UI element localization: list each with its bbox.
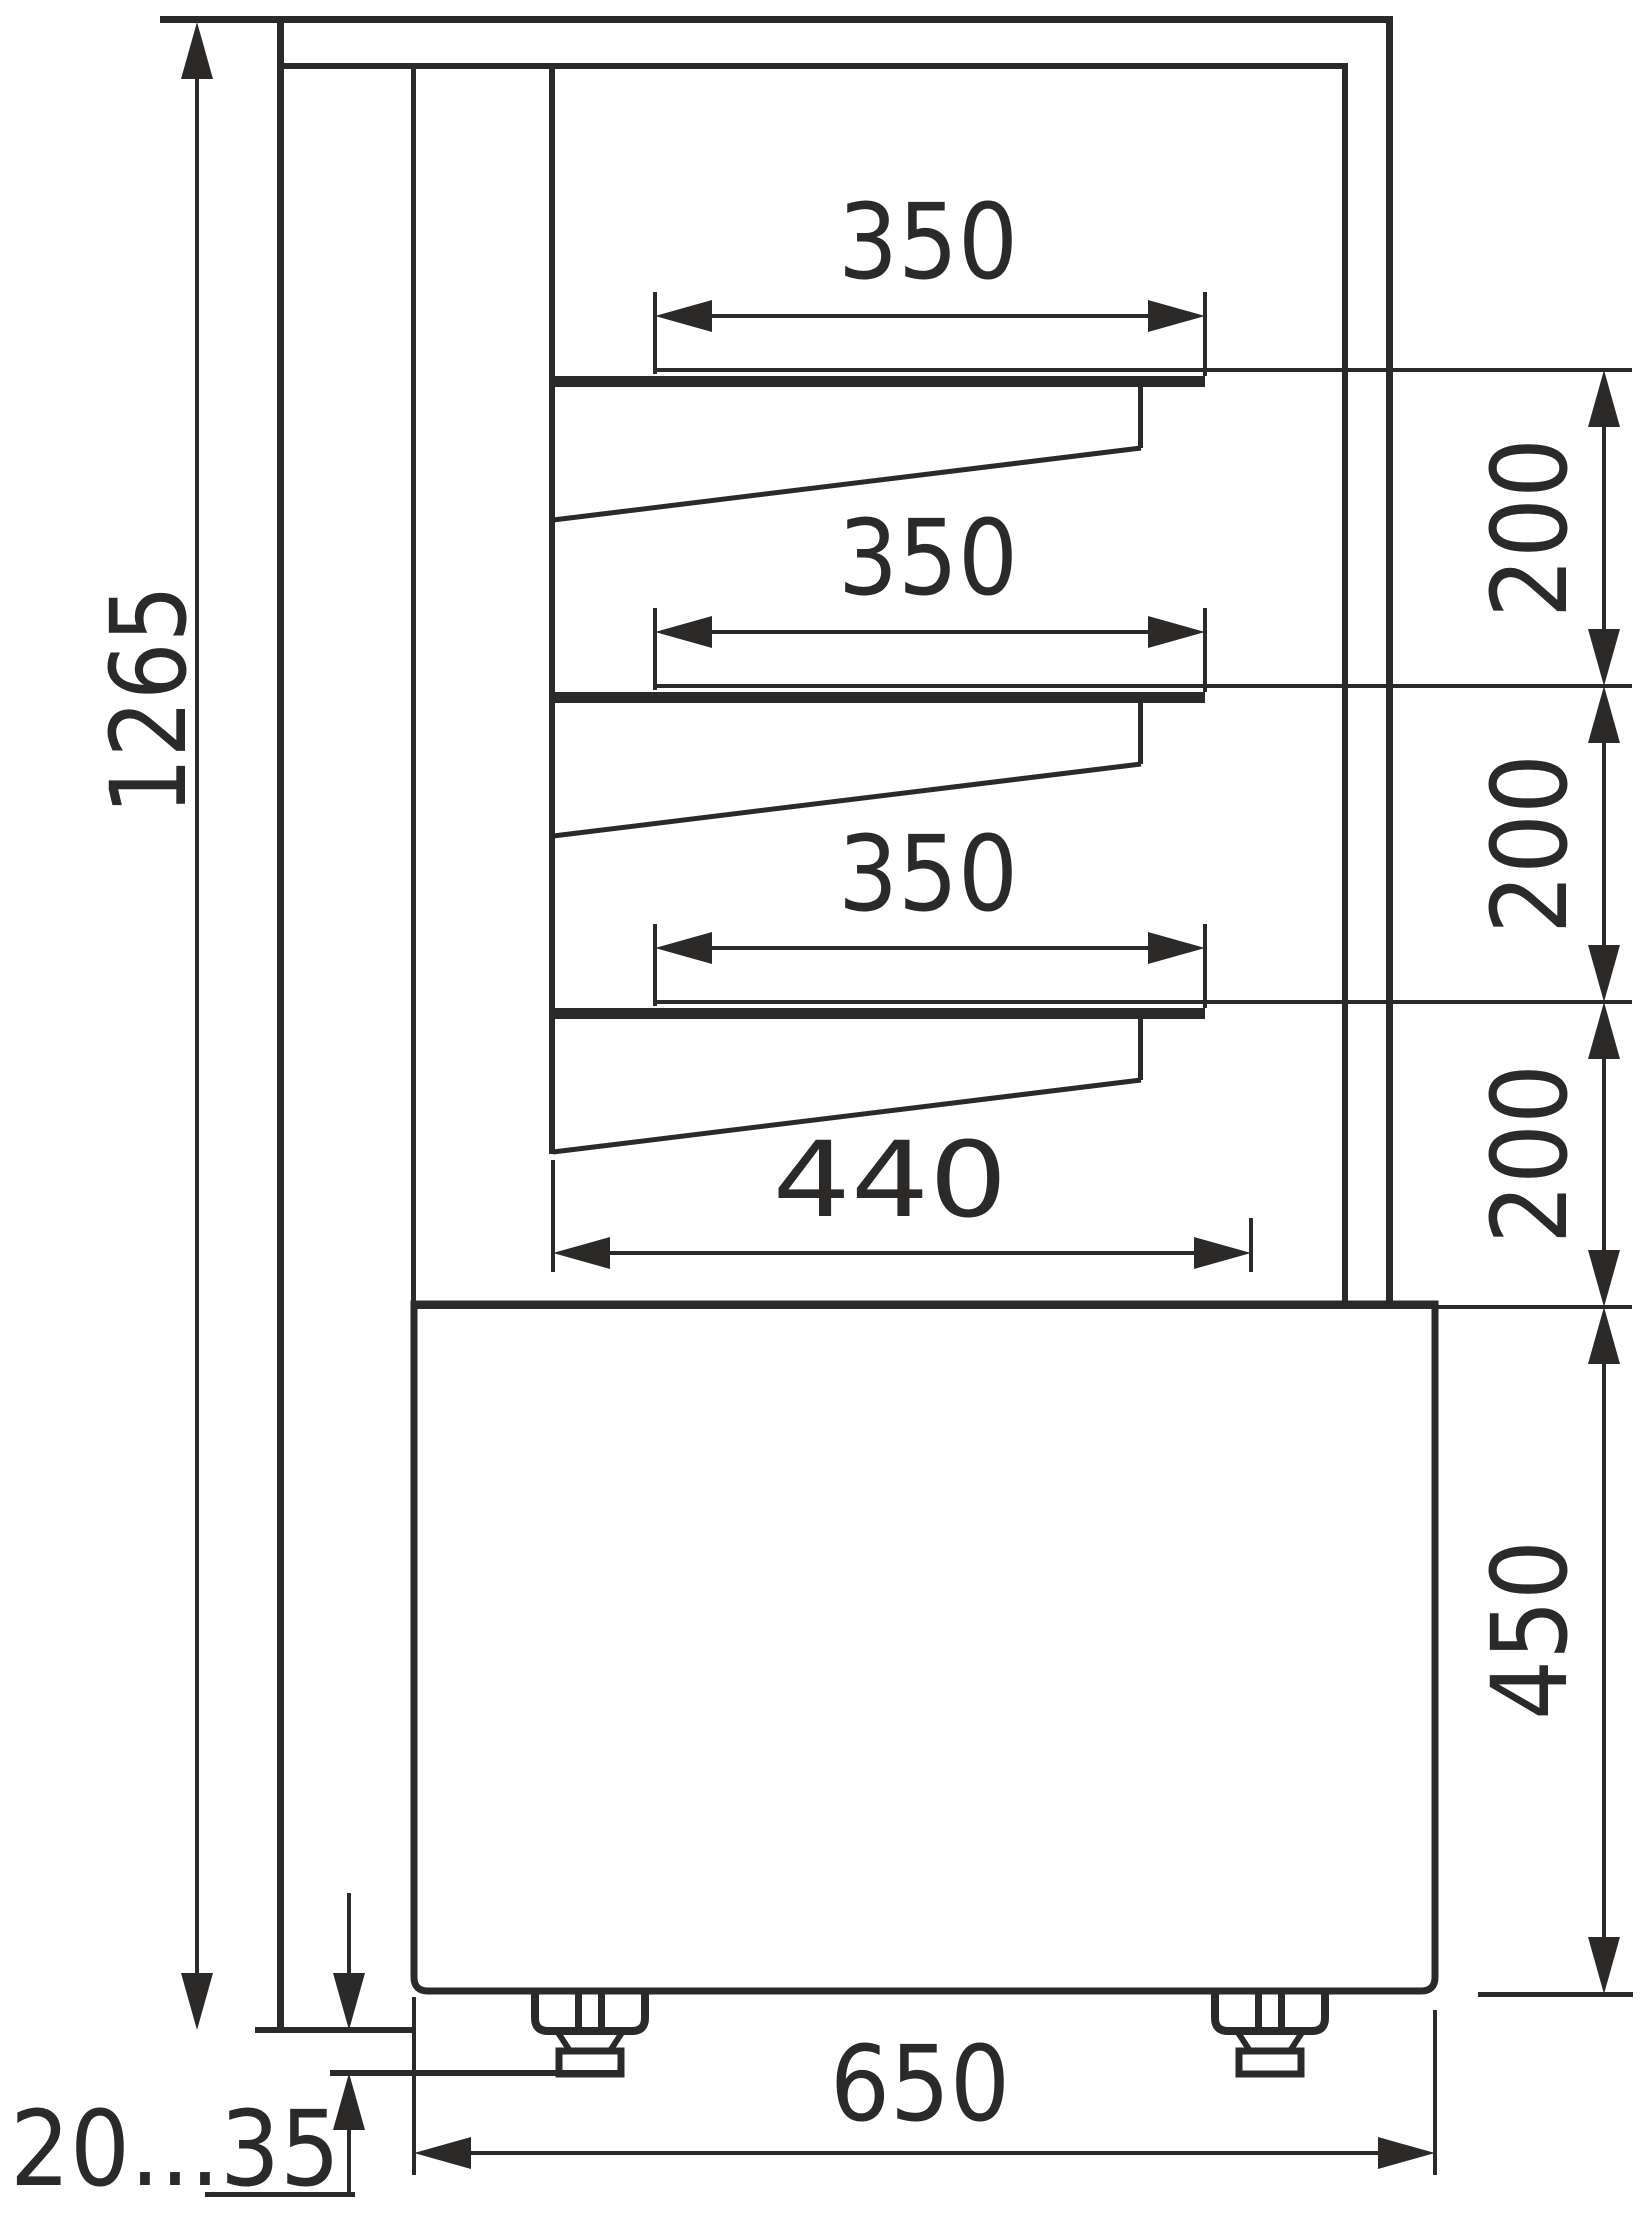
gap-3-arrow-up (1588, 1002, 1620, 1059)
rear-foot-bolt-right (598, 1994, 605, 2031)
depth-arrow-left (414, 2137, 471, 2169)
bottom-shelf-depth-dimension: 440 (551, 1119, 1253, 1272)
shelf-gap-3-label: 200 (1469, 1064, 1591, 1244)
shelf-2-front-edge (1138, 703, 1143, 764)
base-height-arrow-up (1588, 1307, 1620, 1364)
overall-height-label: 1265 (88, 585, 210, 815)
gap-2-arrow-up (1588, 686, 1620, 743)
shelf-2-depth-ext-left (653, 608, 657, 690)
gap-3-arrow-down (1588, 1250, 1620, 1307)
foot-dim-upper-shaft (347, 1893, 351, 1975)
shelf-1-reference-line (655, 368, 1632, 372)
gap-2-dim-line (1602, 743, 1606, 945)
front-foot (1215, 1994, 1325, 2074)
shelf-gap-1-dimension: 200 (1469, 370, 1620, 686)
shelf-3-depth-dimension: 350 (653, 813, 1207, 1008)
front-foot-bolt-left (1255, 1994, 1262, 2031)
depth-ext-right (1433, 2010, 1437, 2175)
bottom-depth-ext-right (1249, 1218, 1253, 1272)
right-dimension-chain: 200 200 200 450 (1438, 370, 1633, 1997)
shelf-gap-3-dimension: 200 (1469, 1002, 1620, 1307)
foot-dim-lower-shaft (347, 2126, 351, 2196)
rear-foot-housing (535, 1994, 645, 2031)
base-height-dim-line (1602, 1364, 1606, 1937)
gap-3-dim-line (1602, 1059, 1606, 1250)
bottom-shelf-depth-label: 440 (773, 1119, 1008, 1241)
shelf-1-depth-ext-right (1203, 292, 1207, 376)
gap-1-dim-line (1602, 427, 1606, 629)
shelf-3-depth-ext-right (1203, 924, 1207, 1008)
shelf-1-depth-dimension: 350 (653, 181, 1207, 376)
shelf-2-depth-arrow-left (655, 616, 712, 648)
foot-dim-arrow-down (333, 1973, 365, 2030)
top-cap-inner-line (284, 63, 1345, 69)
bottom-depth-ext-left (551, 1160, 555, 1272)
shelf-2-depth-ext-right (1203, 608, 1207, 692)
top-cap-outer-line (160, 16, 1392, 23)
shelf-3-depth-arrow-right (1148, 932, 1205, 964)
shelf-1-glass (553, 376, 1205, 387)
shelf-support-column-line (549, 69, 555, 1154)
bottom-depth-dim-line (608, 1251, 1195, 1255)
front-glass-outer-line (1386, 16, 1393, 1307)
base-height-arrow-down (1588, 1937, 1620, 1994)
gap-2-arrow-down (1588, 945, 1620, 1002)
shelf-1-depth-dim-line (710, 314, 1150, 318)
bottom-depth-arrow-left (553, 1237, 610, 1269)
front-foot-housing (1215, 1994, 1325, 2031)
shelf-2-depth-dim-line (710, 630, 1150, 634)
front-foot-bolt-right (1278, 1994, 1285, 2031)
shelf-3-reference-line (655, 1000, 1632, 1004)
shelf-2-glass (553, 692, 1205, 703)
height-dim-line (195, 74, 199, 1975)
rear-foot-bolt-left (575, 1994, 582, 2031)
height-dim-arrow-down (181, 1973, 213, 2030)
base-height-dimension: 450 (1469, 1307, 1620, 1994)
base-box-outline (414, 1304, 1435, 1991)
depth-arrow-right (1378, 2137, 1435, 2169)
foot-adjustment-dimension: 20...35 (10, 1893, 620, 2210)
gap-1-arrow-down (1588, 629, 1620, 686)
shelf-1-depth-arrow-right (1148, 300, 1205, 332)
shelf-2-depth-label: 350 (838, 497, 1018, 619)
gap-1-arrow-up (1588, 370, 1620, 427)
foot-adjustment-label: 20...35 (10, 2088, 340, 2210)
shelf-2-depth-dimension: 350 (653, 497, 1207, 692)
base-top-line (411, 1301, 1438, 1309)
shelf-1-depth-label: 350 (838, 181, 1018, 303)
shelf-3-depth-arrow-left (655, 932, 712, 964)
foot-lower-ref-line (330, 2070, 620, 2076)
bottom-depth-arrow-right (1194, 1237, 1251, 1269)
front-foot-pad (1239, 2051, 1301, 2074)
technical-drawing-page: 1265 350 350 350 440 (0, 0, 1650, 2218)
shelf-1-front-edge (1138, 387, 1143, 448)
rear-wall-line (277, 16, 284, 2030)
shelf-3-front-edge (1138, 1019, 1143, 1080)
shelf-gap-2-dimension: 200 (1469, 686, 1620, 1002)
shelf-1-depth-ext-left (653, 292, 657, 374)
shelf-3-depth-label: 350 (838, 813, 1018, 935)
foot-upper-ref-line (255, 2027, 415, 2033)
height-dim-arrow-up (181, 22, 213, 79)
display-case-drawing: 1265 350 350 350 440 (0, 0, 1650, 2218)
shelf-3-depth-dim-line (710, 946, 1150, 950)
base-bottom-ext-line (1478, 1992, 1633, 1997)
overall-depth-label: 650 (830, 2023, 1010, 2145)
shelf-2-depth-arrow-right (1148, 616, 1205, 648)
overall-height-dimension: 1265 (88, 22, 213, 2030)
depth-ext-left (412, 1997, 416, 2175)
shelf-gap-2-label: 200 (1469, 754, 1591, 934)
inner-rear-panel-line (411, 69, 416, 1307)
shelf-1-depth-arrow-left (655, 300, 712, 332)
shelf-3-glass (553, 1008, 1205, 1019)
shelf-2-reference-line (655, 684, 1632, 688)
depth-dim-line (471, 2151, 1378, 2155)
shelf-3-depth-ext-left (653, 924, 657, 1006)
shelf-gap-1-label: 200 (1469, 438, 1591, 618)
rear-foot (535, 1994, 645, 2074)
cabinet-structure (160, 16, 1438, 2030)
base-top-ext-line (1438, 1305, 1632, 1309)
base-height-label: 450 (1469, 1540, 1591, 1720)
